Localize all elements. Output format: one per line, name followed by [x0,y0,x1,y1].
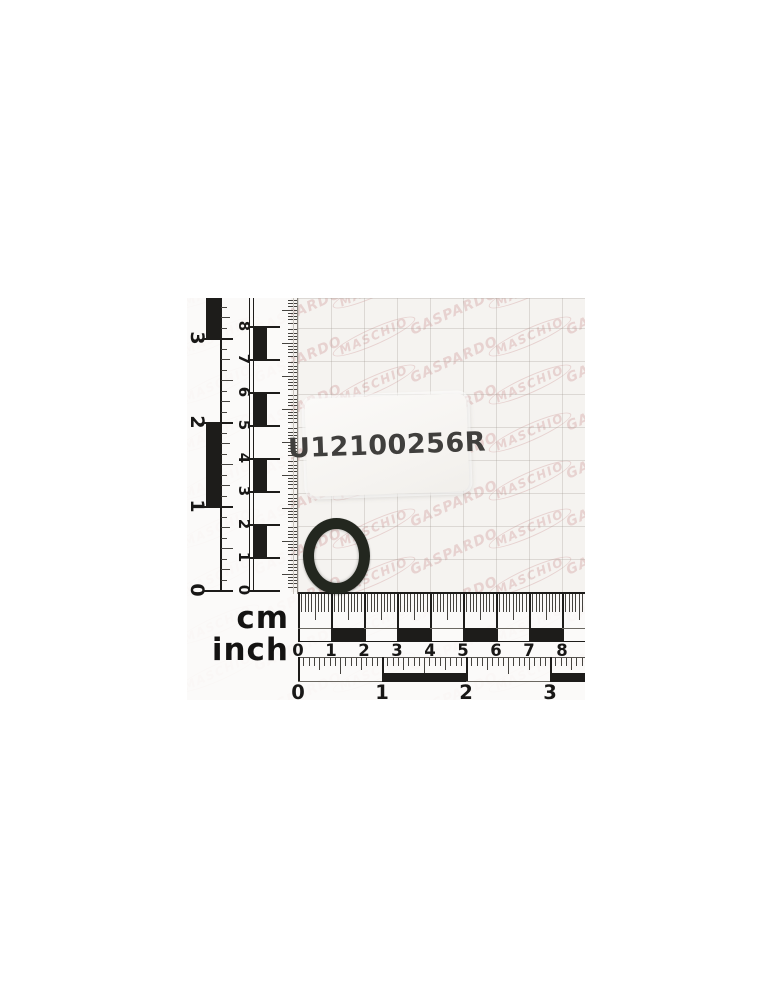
horizontal-cm-mm-tick [305,594,306,612]
horizontal-inch-minor-tick [377,658,378,666]
horizontal-cm-mm-tick [414,594,415,620]
horizontal-inch-minor-tick [555,658,556,666]
horizontal-cm-mm-tick [483,594,484,612]
horizontal-cm-mm-tick [341,594,342,612]
horizontal-cm-mm-tick [371,594,372,612]
horizontal-inch-minor-tick [324,658,325,666]
horizontal-cm-mm-tick [555,594,556,612]
horizontal-cm-mm-tick [357,594,358,612]
horizontal-inch-minor-tick [309,658,310,666]
horizontal-inch-minor-tick [319,658,320,670]
horizontal-inch-minor-tick [335,658,336,666]
horizontal-inch-minor-tick [482,658,483,666]
horizontal-inch-minor-tick [545,658,546,666]
horizontal-cm-mm-tick [480,594,481,620]
horizontal-cm-mm-tick [460,594,461,612]
horizontal-cm-mm-tick [565,594,566,612]
horizontal-cm-mm-tick [344,594,345,612]
horizontal-inch-minor-tick [450,658,451,666]
horizontal-inch-minor-tick [314,658,315,666]
horizontal-cm-mm-tick [489,594,490,612]
horizontal-cm-mm-tick [579,594,580,620]
horizontal-cm-mm-tick [381,594,382,620]
horizontal-inch-number: 2 [454,683,478,700]
horizontal-inch-minor-tick [524,658,525,666]
horizontal-cm-mm-tick [407,594,408,612]
horizontal-inch-minor-tick [303,658,304,666]
horizontal-cm-mm-tick [318,594,319,612]
horizontal-cm-mm-tick [377,594,378,612]
horizontal-cm-black-band [463,628,496,642]
part-number-text: U12100256R [288,426,487,464]
horizontal-cm-mm-tick [423,594,424,612]
cm-unit-label: cm [205,603,289,633]
horizontal-cm-mm-tick [572,594,573,612]
horizontal-inch-minor-tick [503,658,504,666]
horizontal-cm-mm-tick [456,594,457,612]
horizontal-cm-black-band [331,628,364,642]
horizontal-inch-minor-tick [356,658,357,666]
horizontal-cm-mm-tick [384,594,385,612]
horizontal-inch-minor-tick [513,658,514,666]
horizontal-cm-mm-tick [361,594,362,612]
horizontal-cm-mm-tick [509,594,510,612]
horizontal-inch-minor-tick [519,658,520,666]
part-number-sticker: U12100256R [304,393,469,497]
horizontal-cm-mm-tick [473,594,474,612]
horizontal-cm-mm-tick [516,594,517,612]
horizontal-inch-minor-tick [540,658,541,666]
horizontal-inch-minor-tick [403,658,404,670]
horizontal-cm-mm-tick [308,594,309,612]
horizontal-cm-mm-tick [374,594,375,612]
horizontal-inch-minor-tick [351,658,352,666]
horizontal-inch-minor-tick [435,658,436,666]
horizontal-inch-minor-tick [345,658,346,666]
horizontal-cm-mm-tick [453,594,454,612]
horizontal-inch-minor-tick [477,658,478,666]
horizontal-cm-major-tick [496,592,498,642]
horizontal-inch-minor-tick [361,658,362,670]
horizontal-cm-mm-tick [499,594,500,612]
horizontal-cm-mm-tick [466,594,467,612]
horizontal-cm-mm-tick [387,594,388,612]
horizontal-inch-minor-tick [387,658,388,666]
horizontal-inch-minor-tick [419,658,420,666]
horizontal-cm-mm-tick [443,594,444,612]
horizontal-cm-mm-tick [559,594,560,612]
horizontal-cm-mm-tick [552,594,553,612]
horizontal-cm-mm-tick [549,594,550,612]
horizontal-cm-black-band [397,628,430,642]
horizontal-cm-mm-tick [476,594,477,612]
horizontal-inch-major-tick [298,657,300,682]
horizontal-cm-major-tick [298,592,300,642]
horizontal-inch-minor-tick [398,658,399,666]
horizontal-inch-black-band [382,673,466,682]
horizontal-cm-mm-tick [420,594,421,612]
horizontal-cm-mm-tick [546,594,547,620]
horizontal-cm-mm-tick [536,594,537,612]
horizontal-cm-mm-tick [486,594,487,612]
horizontal-cm-mm-tick [433,594,434,612]
horizontal-inch-minor-tick [429,658,430,666]
page-background: MASCHIOMASCHIOMASCHIOMASCHIOMASCHIOMASCH… [0,0,771,1000]
horizontal-inch-minor-tick [408,658,409,666]
horizontal-inch-minor-tick [424,658,425,674]
horizontal-inch-number: 3 [538,683,562,700]
horizontal-inch-minor-tick [471,658,472,666]
horizontal-inch-minor-tick [582,658,583,666]
horizontal-cm-mm-tick [404,594,405,612]
horizontal-inch-minor-tick [498,658,499,666]
horizontal-cm-mm-tick [542,594,543,612]
horizontal-cm-mm-tick [311,594,312,612]
horizontal-cm-mm-tick [526,594,527,612]
horizontal-cm-mm-tick [410,594,411,612]
horizontal-inch-major-tick [466,657,468,682]
horizontal-cm-mm-tick [427,594,428,612]
horizontal-cm-mm-tick [539,594,540,612]
horizontal-cm-black-band [529,628,562,642]
horizontal-cm-mm-tick [321,594,322,612]
horizontal-cm-mm-tick [400,594,401,612]
horizontal-inch-minor-tick [492,658,493,666]
horizontal-inch-minor-tick [366,658,367,666]
horizontal-cm-major-tick [562,592,564,642]
inch-unit-label: inch [193,635,289,665]
horizontal-cm-mm-tick [394,594,395,612]
horizontal-inch-minor-tick [529,658,530,670]
product-photo: MASCHIOMASCHIOMASCHIOMASCHIOMASCHIOMASCH… [187,298,585,700]
horizontal-inch-minor-tick [393,658,394,666]
horizontal-cm-mm-tick [582,594,583,612]
horizontal-cm-mm-tick [348,594,349,620]
horizontal-inch-minor-tick [561,658,562,666]
horizontal-inch-minor-tick [487,658,488,670]
horizontal-inch-minor-tick [340,658,341,674]
horizontal-cm-mm-tick [354,594,355,612]
horizontal-inch-minor-tick [576,658,577,666]
horizontal-cm-mm-tick [503,594,504,612]
horizontal-cm-mm-tick [315,594,316,620]
horizontal-inch-top-line [298,657,585,658]
horizontal-cm-mm-tick [324,594,325,612]
horizontal-inch-minor-tick [372,658,373,666]
horizontal-cm-mm-tick [569,594,570,612]
horizontal-cm-major-tick [430,592,432,642]
o-ring-product [303,518,370,594]
horizontal-cm-mm-tick [440,594,441,612]
horizontal-cm-mm-tick [470,594,471,612]
horizontal-inch-minor-tick [571,658,572,670]
horizontal-cm-mm-tick [338,594,339,612]
horizontal-cm-mm-tick [522,594,523,612]
horizontal-cm-mm-tick [390,594,391,612]
horizontal-cm-mm-tick [334,594,335,612]
horizontal-cm-mm-tick [575,594,576,612]
horizontal-cm-mm-tick [450,594,451,612]
horizontal-inch-minor-tick [508,658,509,674]
horizontal-inch-minor-tick [330,658,331,666]
horizontal-cm-mm-tick [328,594,329,612]
horizontal-cm-mm-tick [447,594,448,620]
horizontal-cm-mm-tick [417,594,418,612]
horizontal-cm-mm-tick [532,594,533,612]
horizontal-cm-mm-tick [493,594,494,612]
horizontal-cm-mm-tick [301,594,302,612]
horizontal-cm-mm-tick [519,594,520,612]
horizontal-inch-minor-tick [461,658,462,666]
horizontal-cm-mm-tick [513,594,514,620]
horizontal-inch-minor-tick [440,658,441,666]
horizontal-inch-minor-tick [456,658,457,666]
horizontal-cm-mm-tick [367,594,368,612]
horizontal-cm-major-tick [364,592,366,642]
horizontal-inch-number: 1 [370,683,394,700]
horizontal-inch-minor-tick [445,658,446,670]
horizontal-cm-mm-tick [506,594,507,612]
horizontal-inch-minor-tick [534,658,535,666]
horizontal-inch-number: 0 [286,683,310,700]
horizontal-cm-mm-tick [437,594,438,612]
horizontal-inch-minor-tick [566,658,567,666]
horizontal-cm-mm-tick [351,594,352,612]
horizontal-inch-minor-tick [414,658,415,666]
